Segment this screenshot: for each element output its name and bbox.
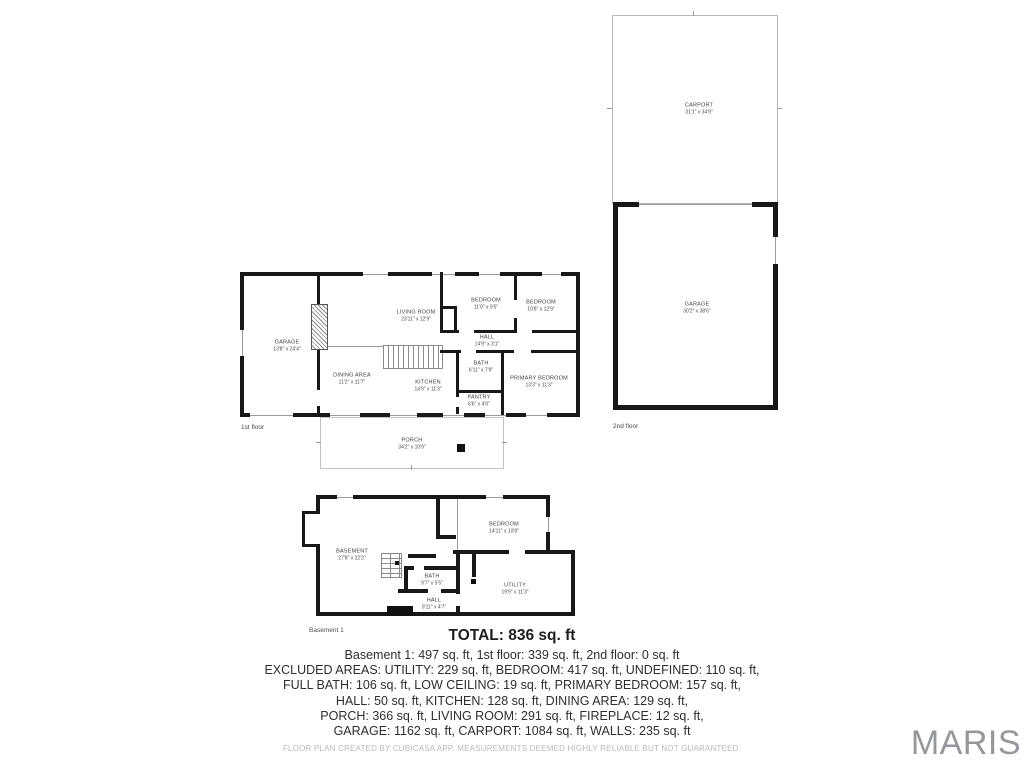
total-area-text: TOTAL: 836 sq. ft	[0, 627, 1024, 645]
room-dims: 11'2" x 11'7"	[333, 380, 371, 386]
wall-segment	[424, 566, 460, 570]
room-name: BATH	[469, 361, 493, 368]
room-name: PRIMARY BEDROOM	[510, 376, 568, 383]
room-dims: 13'3" x 11'3"	[510, 383, 568, 389]
stair-post-dot	[395, 561, 399, 565]
wall-segment	[302, 544, 320, 547]
tick-mark	[316, 442, 321, 443]
wall-segment	[440, 272, 443, 332]
wall-notch-opening	[316, 514, 320, 545]
room-name: CARPORT	[685, 103, 713, 110]
room-name: GARAGE	[273, 340, 300, 347]
window-opening	[526, 413, 547, 417]
room-dims: 31'1" x 34'9"	[685, 110, 713, 116]
room-label-dining-area: DINING AREA 11'2" x 11'7"	[333, 373, 371, 386]
wall-segment	[474, 330, 517, 333]
room-label-bath-1f: BATH 6'11" x 7'9"	[469, 361, 493, 374]
room-dims: 14'9" x 11'3"	[414, 387, 441, 393]
room-dims: 14'9" x 3'1"	[475, 342, 500, 348]
room-dims: 19'9" x 11'3"	[501, 590, 528, 596]
room-dims: 30'2" x 38'6"	[683, 309, 710, 315]
room-name: BEDROOM	[471, 298, 501, 305]
room-dims: 14'11" x 10'8"	[489, 529, 519, 535]
room-label-porch: PORCH 34'2" x 10'9"	[398, 438, 425, 451]
room-dims: 23'11" x 12'9"	[397, 317, 436, 323]
room-label-utility: UTILITY 19'9" x 11'3"	[501, 583, 528, 596]
wall-segment	[476, 350, 514, 353]
wall-segment	[472, 554, 476, 577]
wall-segment	[454, 309, 457, 332]
room-label-hall-1f: HALL 14'9" x 3'1"	[475, 335, 500, 348]
room-label-bedroom-right: BEDROOM 10'8" x 12'9"	[526, 300, 556, 313]
tick-mark	[607, 108, 612, 109]
wall-segment	[532, 330, 580, 333]
floor-plan-page: CARPORT 31'1" x 34'9" GARAGE 30'2" x 38'…	[0, 0, 1024, 767]
wall-segment	[436, 535, 456, 539]
wall-segment	[456, 407, 459, 414]
staircase	[381, 553, 402, 578]
summary-line: HALL: 50 sq. ft, KITCHEN: 128 sq. ft, DI…	[0, 694, 1024, 709]
chimney	[387, 606, 413, 616]
support-post	[457, 444, 465, 452]
room-name: UTILITY	[501, 583, 528, 590]
wall-segment	[456, 390, 504, 393]
room-label-bedroom-left: BEDROOM 11'0" x 9'5"	[471, 298, 501, 311]
room-dims: 10'8" x 12'9"	[526, 307, 556, 313]
room-label-bath-basement: BATH 9'7" x 5'5"	[421, 574, 443, 587]
cubicasa-disclaimer: FLOOR PLAN CREATED BY CUBICASA APP. MEAS…	[0, 744, 1024, 753]
window-opening	[773, 237, 778, 264]
wall-segment	[576, 272, 580, 417]
wall-segment	[316, 612, 575, 616]
wall-segment	[456, 554, 460, 594]
summary-line: EXCLUDED AREAS: UTILITY: 229 sq. ft, BED…	[0, 663, 1024, 678]
room-label-basement: BASEMENT 27'8" x 22'2"	[336, 549, 368, 562]
room-dims: 6'6" x 4'0"	[467, 402, 490, 408]
room-dims: 11'0" x 9'5"	[471, 305, 501, 311]
wall-segment	[436, 495, 440, 539]
room-dims: 13'8" x 24'4"	[273, 347, 300, 353]
wall-segment	[317, 406, 320, 413]
wall-segment	[441, 589, 460, 593]
room-name: HALL	[475, 335, 500, 342]
wall-segment	[453, 550, 509, 554]
room-name: BATH	[421, 574, 443, 581]
room-name: GARAGE	[683, 302, 710, 309]
room-label-hall-basement: HALL 9'11" x 4'7"	[422, 598, 446, 611]
wall-segment	[317, 348, 320, 390]
window-opening	[337, 495, 353, 499]
door-hinge-dot	[471, 579, 476, 584]
room-dims: 9'7" x 5'5"	[421, 581, 443, 587]
wall-segment	[456, 350, 459, 393]
room-name: BEDROOM	[489, 522, 519, 529]
room-label-living-room: LIVING ROOM 23'11" x 12'9"	[397, 310, 436, 323]
summary-line: Basement 1: 497 sq. ft, 1st floor: 339 s…	[0, 648, 1024, 663]
wall-segment	[456, 393, 459, 397]
room-label-carport: CARPORT 31'1" x 34'9"	[685, 103, 713, 116]
wall-segment	[514, 272, 517, 300]
room-label-kitchen: KITCHEN 14'9" x 11'3"	[414, 380, 441, 393]
room-name: PANTRY	[467, 395, 490, 402]
window-opening	[546, 517, 550, 532]
window-opening	[240, 330, 244, 356]
room-name: DINING AREA	[333, 373, 371, 380]
wall-segment	[613, 202, 618, 410]
tick-mark	[693, 11, 694, 16]
tick-mark	[502, 442, 507, 443]
wall-segment	[773, 202, 778, 410]
stair-rail-line	[328, 346, 383, 347]
wall-segment	[571, 550, 575, 616]
wall-segment	[317, 272, 320, 306]
room-dims: 9'11" x 4'7"	[422, 605, 446, 611]
wall-segment	[302, 511, 305, 547]
room-name: KITCHEN	[414, 380, 441, 387]
window-opening	[363, 272, 388, 276]
room-name: BEDROOM	[526, 300, 556, 307]
wall-segment	[240, 272, 580, 276]
room-dims: 6'11" x 7'9"	[469, 368, 493, 374]
room-name: HALL	[422, 598, 446, 605]
room-label-garage-1f: GARAGE 13'8" x 24'4"	[273, 340, 300, 353]
wall-segment	[525, 550, 550, 554]
summary-line: FULL BATH: 106 sq. ft, LOW CEILING: 19 s…	[0, 678, 1024, 693]
room-label-primary-bedroom: PRIMARY BEDROOM 13'3" x 11'3"	[510, 376, 568, 389]
room-label-pantry: PANTRY 6'6" x 4'0"	[467, 395, 490, 408]
floor-label-2nd: 2nd floor	[613, 423, 638, 430]
window-opening	[432, 272, 455, 276]
wall-segment	[531, 350, 580, 353]
wall-segment	[408, 554, 436, 558]
room-label-garage-2f: GARAGE 30'2" x 38'6"	[683, 302, 710, 315]
wall-segment	[613, 405, 778, 410]
summary-line: GARAGE: 1162 sq. ft, CARPORT: 1084 sq. f…	[0, 724, 1024, 739]
garage-door-opening	[250, 413, 293, 417]
room-dims: 27'8" x 22'2"	[336, 556, 368, 562]
room-dims: 34'2" x 10'9"	[398, 445, 425, 451]
wall-segment	[501, 350, 504, 415]
floor-label-1st: 1st floor	[241, 424, 264, 431]
room-name: PORCH	[398, 438, 425, 445]
window-opening	[486, 495, 503, 499]
tick-mark	[411, 465, 412, 470]
maris-watermark: MARIS	[911, 724, 1021, 763]
window-opening	[542, 272, 561, 276]
room-name: BASEMENT	[336, 549, 368, 556]
window-opening	[479, 272, 500, 276]
room-name: LIVING ROOM	[397, 310, 436, 317]
fireplace-hatch	[311, 304, 328, 350]
room-label-bedroom-basement: BEDROOM 14'11" x 10'8"	[489, 522, 519, 535]
staircase	[383, 345, 443, 369]
area-summary: TOTAL: 836 sq. ft Basement 1: 497 sq. ft…	[0, 627, 1024, 753]
low-ceiling-divider-line	[457, 499, 458, 552]
open-wall-line	[639, 204, 752, 205]
wall-segment	[398, 589, 428, 593]
wall-segment	[440, 330, 459, 333]
summary-line: PORCH: 366 sq. ft, LIVING ROOM: 291 sq. …	[0, 709, 1024, 724]
tick-mark	[777, 108, 782, 109]
wall-segment	[456, 606, 460, 616]
